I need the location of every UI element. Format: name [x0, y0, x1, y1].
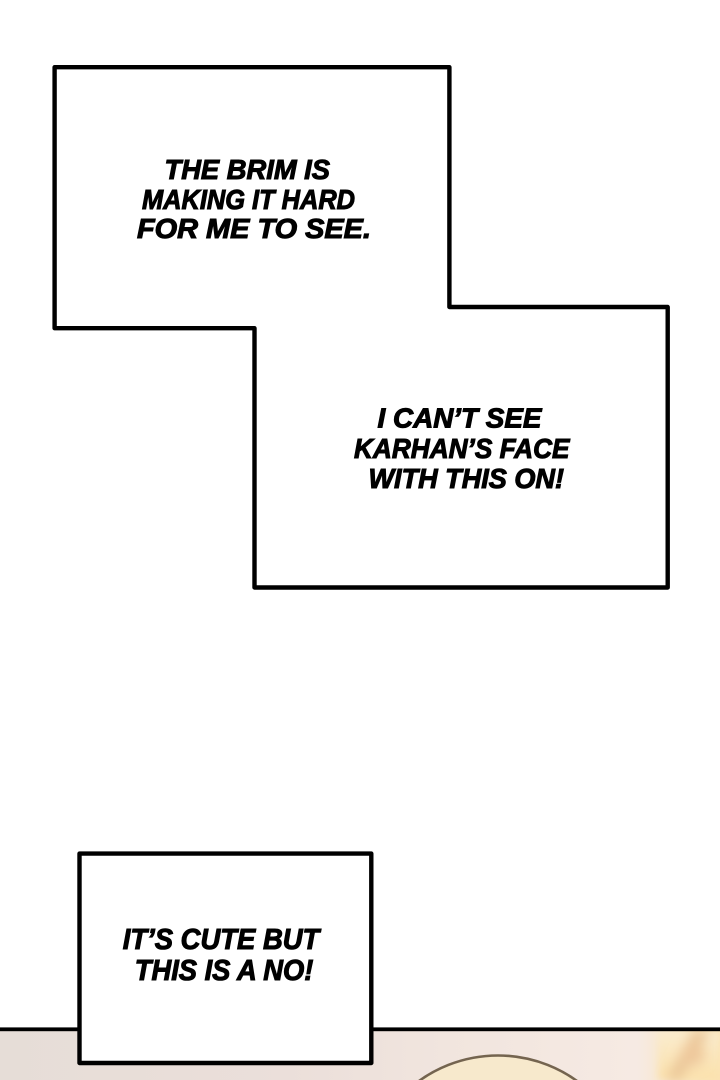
svg-text:THE BRIM IS: THE BRIM IS: [165, 154, 331, 185]
svg-text:MAKING IT HARD: MAKING IT HARD: [142, 184, 355, 215]
svg-text:IT’S CUTE BUT: IT’S CUTE BUT: [123, 924, 322, 956]
svg-text:KARHAN’S FACE: KARHAN’S FACE: [354, 433, 571, 464]
svg-text:WITH THIS ON!: WITH THIS ON!: [369, 463, 565, 494]
svg-text:I CAN’T SEE: I CAN’T SEE: [378, 403, 544, 434]
svg-text:THIS IS A NO!: THIS IS A NO!: [135, 955, 314, 987]
svg-text:FOR ME TO SEE.: FOR ME TO SEE.: [137, 213, 371, 244]
